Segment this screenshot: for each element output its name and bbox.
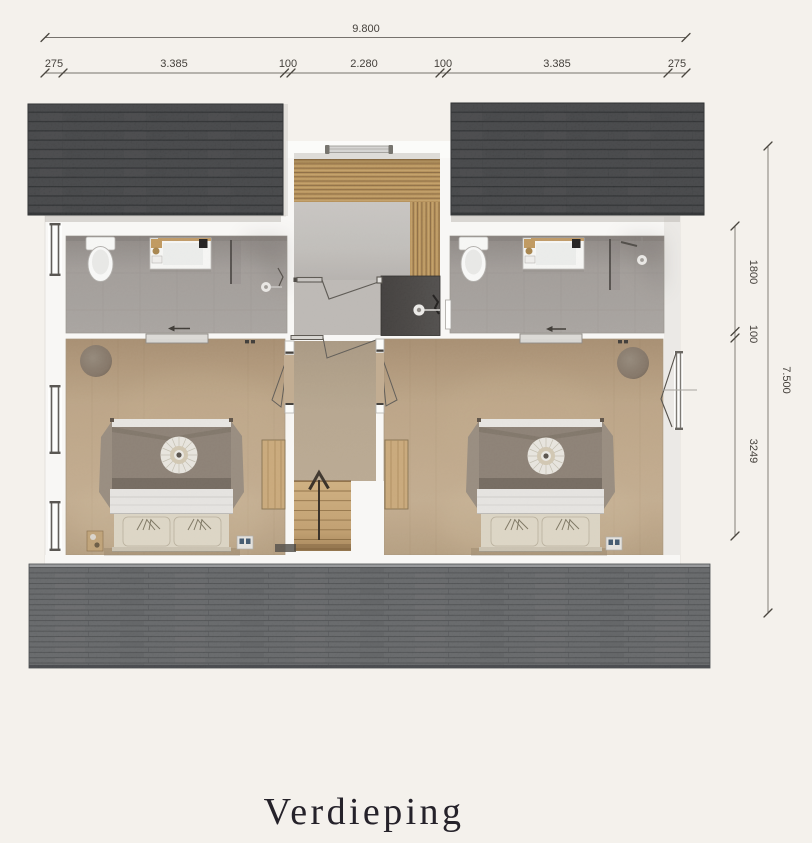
svg-text:7.500: 7.500 <box>780 366 792 394</box>
svg-text:3249: 3249 <box>747 439 759 463</box>
svg-text:3.385: 3.385 <box>543 58 571 70</box>
svg-text:3.385: 3.385 <box>160 58 188 70</box>
svg-text:100: 100 <box>434 58 452 70</box>
svg-text:2.280: 2.280 <box>350 58 378 70</box>
svg-text:1800: 1800 <box>747 260 759 284</box>
svg-text:275: 275 <box>45 58 63 70</box>
svg-text:100: 100 <box>747 325 759 343</box>
svg-text:9.800: 9.800 <box>352 23 380 35</box>
svg-text:100: 100 <box>279 58 297 70</box>
svg-text:275: 275 <box>668 58 686 70</box>
svg-text:Verdieping: Verdieping <box>264 791 465 833</box>
